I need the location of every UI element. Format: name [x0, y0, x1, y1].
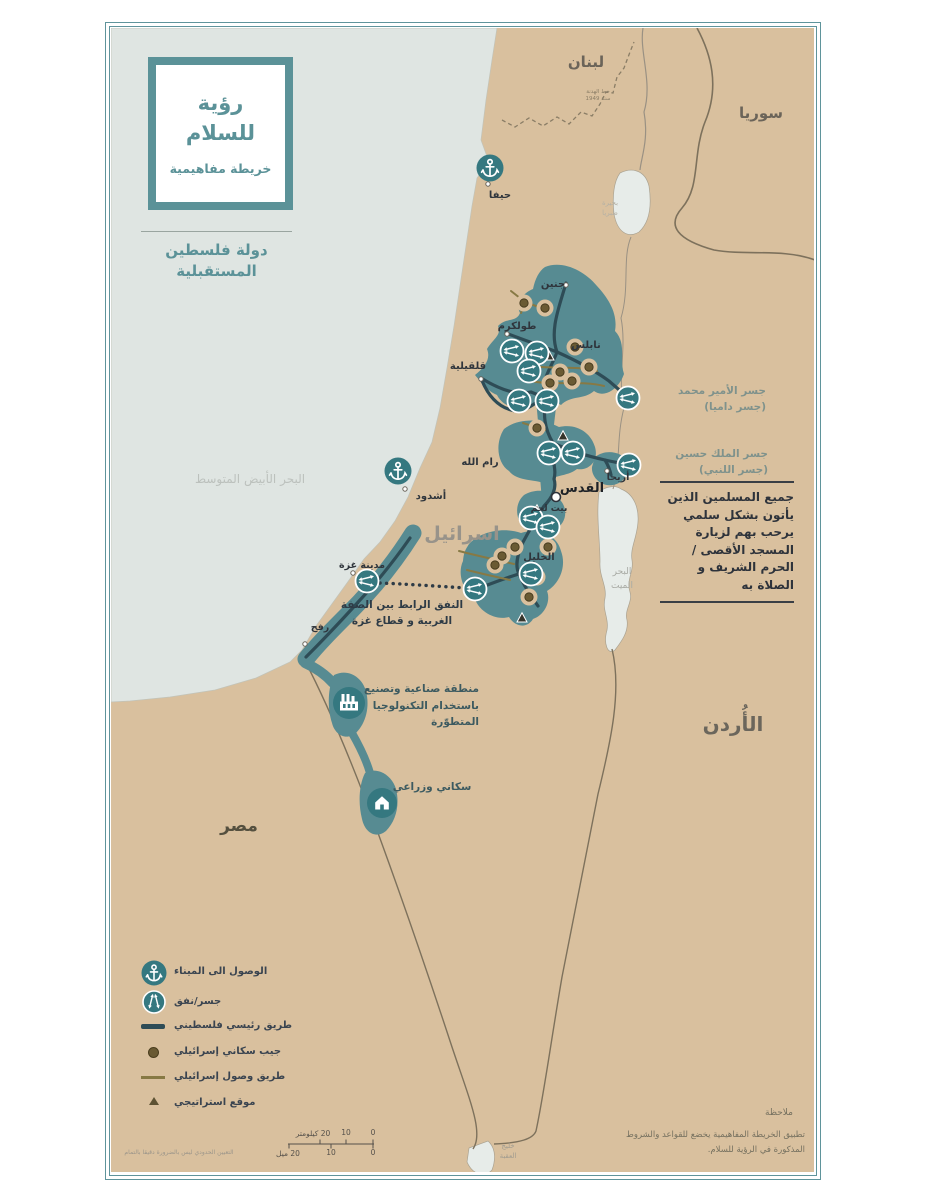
city-label-jenin: جنين — [541, 279, 565, 290]
note-body: تطبيق الخريطة المفاهيمية يخضع للقواعد وا… — [600, 1128, 805, 1158]
scale-mi-20: 20 ميل — [276, 1149, 300, 1158]
legend-israeli-enclave-dot — [148, 1047, 159, 1058]
city-label-qalqilya: قلقيلية — [450, 361, 486, 372]
scale-mi-0: 0 — [371, 1148, 376, 1157]
tunnel-label: النفق الرابط بين الضفة الغربية و قطاع غز… — [337, 597, 467, 629]
scale-mi-10: 10 — [326, 1148, 336, 1157]
city-label-jericho: أريحا — [607, 472, 630, 483]
scale-km-20: 20 كيلومتر — [296, 1129, 331, 1138]
aqsa-note-box: جميع المسلمين الذين يأتون بشكل سلمي يرحب… — [660, 481, 794, 603]
legend-strategic-site-triangle — [149, 1097, 159, 1105]
title-divider — [141, 231, 292, 232]
country-label-lebanon: لبنان — [568, 53, 604, 71]
scale-km-0: 0 — [371, 1128, 376, 1137]
gulf-label-aqaba: خليج العقبة — [500, 1141, 517, 1161]
note-heading: ملاحظة — [700, 1108, 793, 1118]
agricultural-zone-label: سكاني وزراعي — [393, 781, 472, 793]
city-label-ramallah: رام الله — [461, 457, 498, 468]
industrial-zone-label: منطقة صناعية وتصنيع باستخدام التكنولوجيا… — [373, 681, 479, 731]
city-label-nablus: نابلس — [571, 340, 600, 351]
legend-label-strategic-site: موقع استراتيجي — [174, 1097, 255, 1108]
title-line2: للسلام — [186, 121, 255, 145]
legend-label-israeli-enclave: جيب سكاني إسرائيلي — [174, 1046, 281, 1057]
city-label-bethlehem: بيت لحم — [531, 504, 568, 514]
title-subtitle: خريطة مفاهيمية — [170, 161, 272, 176]
sea-label-dead-sea: البحر الميت — [611, 565, 633, 593]
sea-label-mediterranean: البحر الأبيض المتوسط — [195, 472, 305, 486]
city-label-rafah: رفح — [311, 622, 330, 633]
city-label-tulkarm: طولكرم — [498, 321, 537, 332]
city-label-haifa: حيفا — [489, 190, 511, 201]
lake-label-tiberias: بحيرة طبريا — [602, 198, 618, 218]
country-label-syria: سوريا — [739, 104, 783, 122]
bridge-label-damia: جسر الأمير محمد (جسر داميا) — [688, 383, 766, 415]
legend-label-israeli-access-road: طريق وصول إسرائيلي — [174, 1071, 285, 1082]
legend-palestinian-road-line — [141, 1024, 165, 1029]
country-label-israel: اسرائيل — [424, 523, 499, 545]
country-label-egypt: مصر — [220, 816, 258, 836]
peace-vision-map-page: رؤية للسلام خريطة مفاهيمية دولة فلسطين ا… — [0, 0, 925, 1200]
legend-label-palestinian-road: طريق رئيسي فلسطيني — [174, 1020, 292, 1031]
legend-label-port: الوصول الى الميناء — [174, 966, 267, 977]
legend-bridge-tunnel-icon — [138, 986, 170, 1018]
armistice-line-label: خط الهدنة سنة 1949 — [586, 89, 611, 103]
border-disclaimer: التعيين الحدودي ليس بالضرورة دقيقا بالتم… — [120, 1149, 238, 1156]
future-state-label: دولة فلسطين المستقبلية — [140, 240, 293, 282]
factory-icon — [333, 687, 365, 719]
city-label-gaza-city: مدينة غزة — [339, 560, 385, 571]
country-label-jordan: الأُردن — [703, 712, 764, 736]
title-line1: رؤية — [198, 91, 244, 115]
legend-label-bridge-tunnel: جسر/نفق — [174, 996, 221, 1007]
bridge-label-hussein: جسر الملك حسين (جسر اللنبي) — [688, 446, 768, 478]
city-label-jerusalem: القدس — [560, 481, 604, 496]
title-box: رؤية للسلام خريطة مفاهيمية — [148, 57, 293, 210]
city-label-hebron: الخليل — [523, 552, 554, 563]
legend-israeli-access-road-line — [141, 1076, 165, 1079]
city-label-ashdod: أشدود — [416, 491, 446, 502]
scale-km-10: 10 — [341, 1128, 351, 1137]
lake-tiberias — [613, 170, 650, 234]
